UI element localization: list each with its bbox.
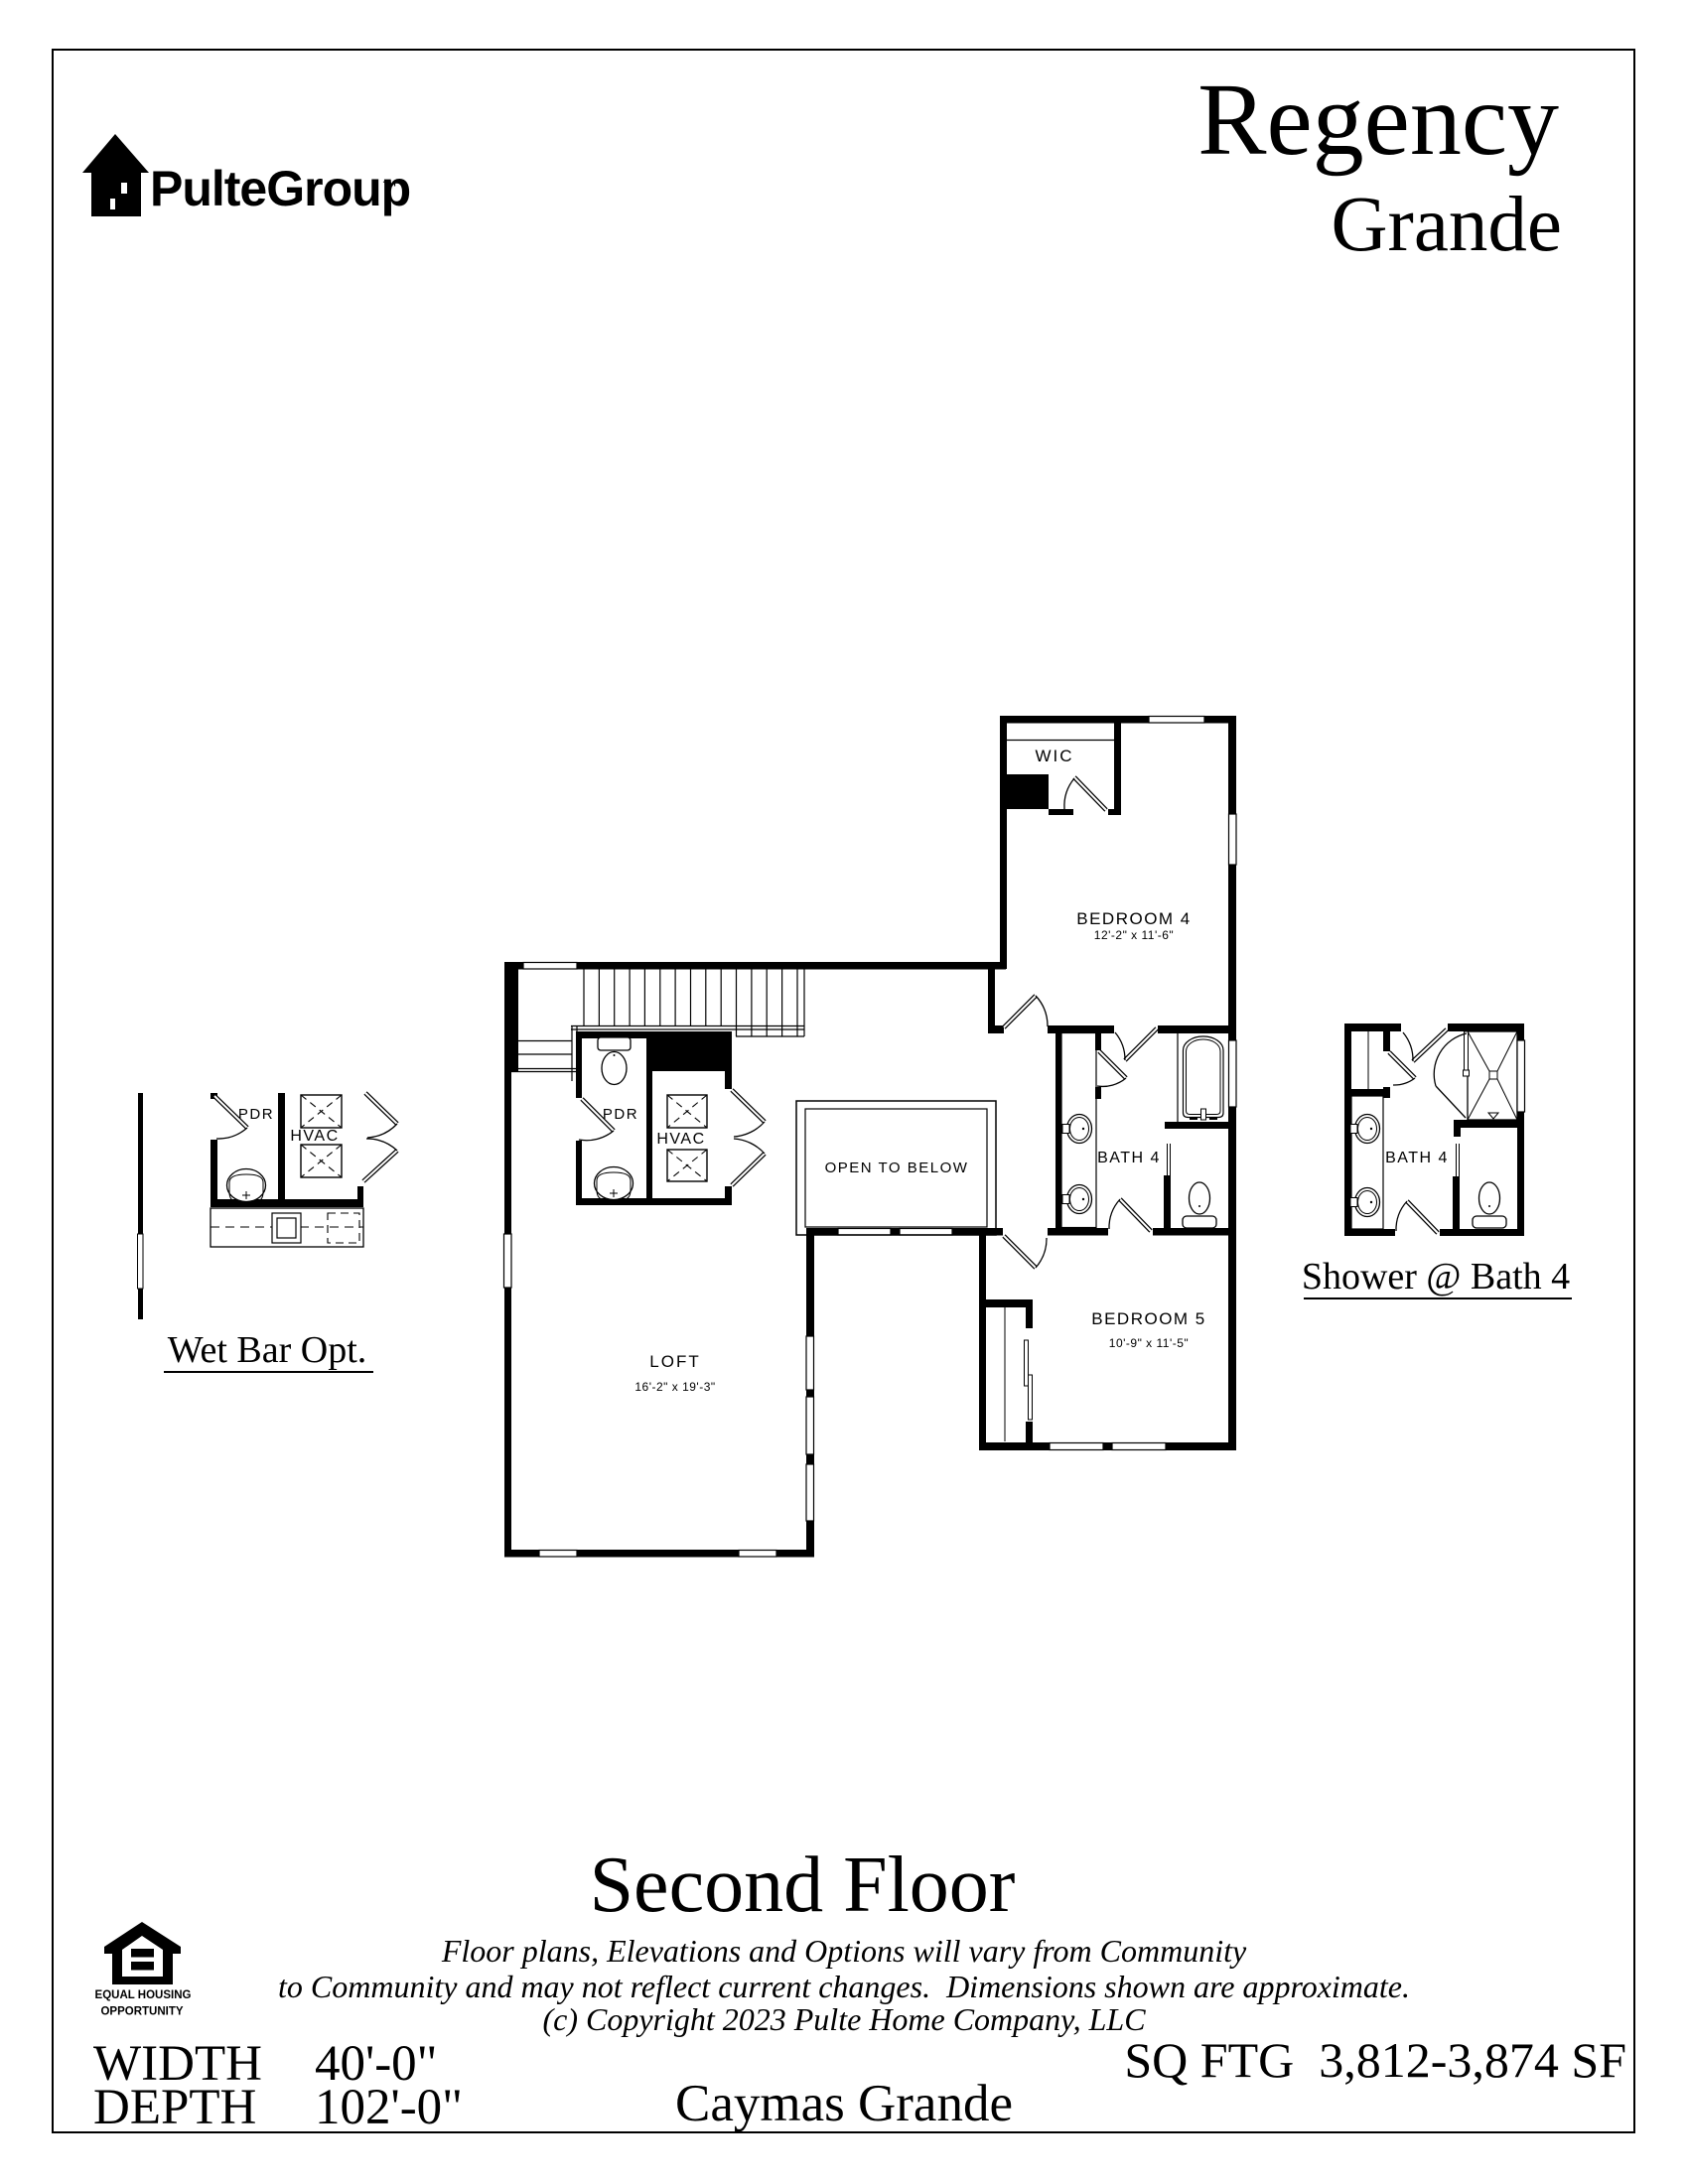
svg-text:OPPORTUNITY: OPPORTUNITY [100,2006,183,2018]
svg-text:to Community and may not refle: to Community and may not reflect current… [278,1969,1410,2004]
svg-text:Caymas Grande: Caymas Grande [675,2075,1013,2132]
svg-text:102'-0": 102'-0" [315,2080,463,2135]
svg-text:LOFT: LOFT [649,1352,700,1371]
svg-text:10'-9" x 11'-5": 10'-9" x 11'-5" [1109,1336,1189,1350]
svg-text:PDR: PDR [238,1106,274,1123]
svg-text:Second Floor: Second Floor [590,1842,1016,1929]
svg-text:(c) Copyright 2023 Pulte Home: (c) Copyright 2023 Pulte Home Company, L… [542,2001,1146,2037]
svg-text:Grande: Grande [1332,182,1563,268]
svg-text:Regency: Regency [1197,63,1559,177]
svg-text:OPEN TO BELOW: OPEN TO BELOW [825,1160,969,1176]
svg-text:BATH 4: BATH 4 [1385,1150,1449,1166]
svg-text:HVAC: HVAC [656,1131,705,1148]
svg-text:Shower @ Bath 4: Shower @ Bath 4 [1302,1256,1570,1297]
svg-text:HVAC: HVAC [290,1128,339,1145]
svg-text:™: ™ [382,179,397,196]
svg-text:SQ FTG 3,812-3,874 SF: SQ FTG 3,812-3,874 SF [1124,2032,1626,2088]
svg-text:Floor plans, Elevations and Op: Floor plans, Elevations and Options will… [441,1933,1247,1969]
svg-text:DEPTH: DEPTH [93,2080,256,2135]
svg-text:Wet Bar Opt.: Wet Bar Opt. [168,1329,367,1371]
svg-text:BEDROOM 5: BEDROOM 5 [1091,1309,1206,1328]
svg-text:12'-2" x 11'-6": 12'-2" x 11'-6" [1094,928,1174,942]
svg-text:BATH 4: BATH 4 [1097,1150,1161,1166]
svg-text:BEDROOM 4: BEDROOM 4 [1076,909,1192,928]
svg-text:EQUAL HOUSING: EQUAL HOUSING [95,1989,192,2001]
svg-text:16'-2" x 19'-3": 16'-2" x 19'-3" [634,1380,715,1394]
svg-text:PulteGroup: PulteGroup [150,161,410,216]
svg-text:PDR: PDR [603,1106,638,1123]
svg-text:WIC: WIC [1035,747,1073,765]
